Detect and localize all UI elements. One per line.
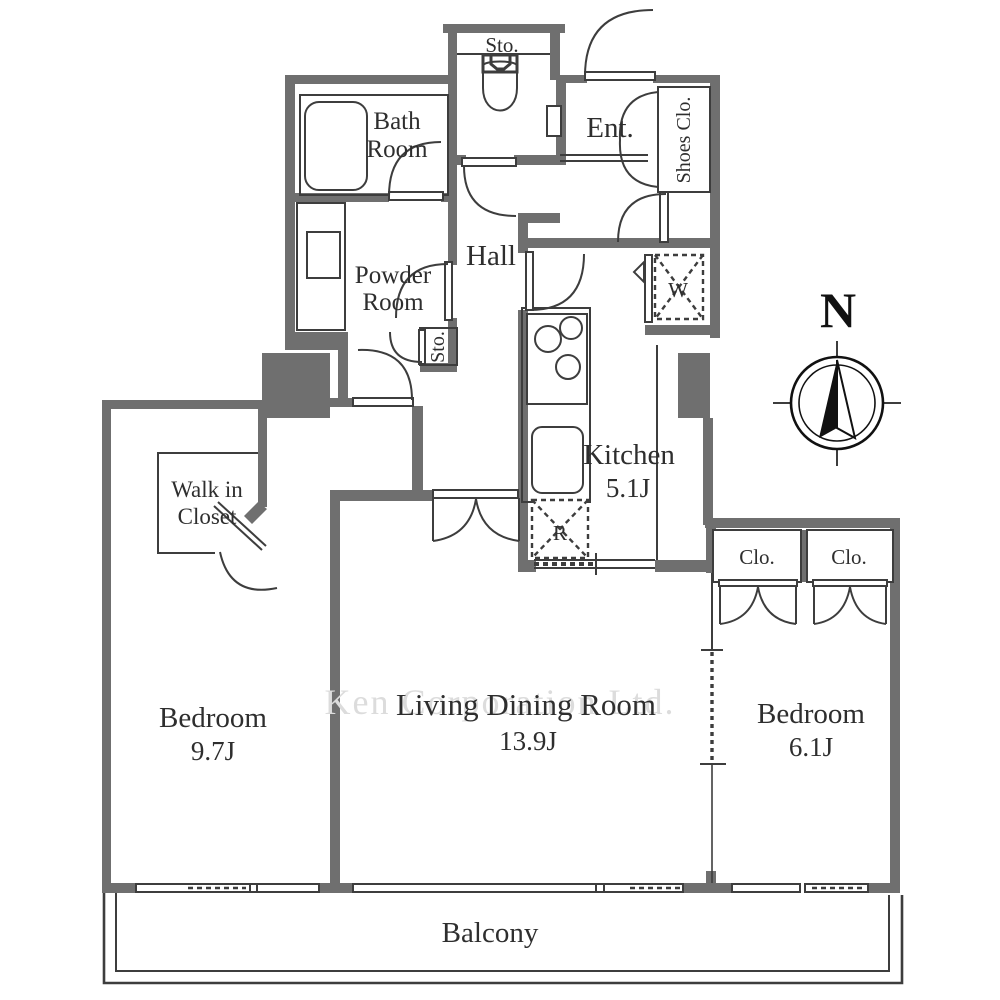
floor-plan-page: Ken Corporation Ltd. Sto. Bath Room Ent.… bbox=[0, 0, 1000, 1000]
bathtub-icon bbox=[305, 102, 367, 190]
bedroom1-window bbox=[136, 884, 319, 892]
windows bbox=[136, 884, 868, 892]
label-refrigerator: R bbox=[553, 521, 567, 545]
kitchen-counter bbox=[522, 308, 590, 502]
washer-door-panel bbox=[645, 255, 652, 322]
washer-door-arrow-icon bbox=[634, 262, 644, 282]
bedroom2-window bbox=[732, 884, 868, 892]
floor-plan-svg: Ken Corporation Ltd. Sto. Bath Room Ent.… bbox=[0, 0, 1000, 1000]
label-closet-right: Clo. bbox=[831, 545, 867, 569]
vanity-counter bbox=[297, 203, 345, 330]
toilet-icon bbox=[483, 55, 517, 111]
front-door bbox=[585, 10, 655, 80]
kitchen-door bbox=[526, 252, 584, 310]
label-ldr-size: 13.9J bbox=[499, 726, 557, 756]
ldr-window bbox=[353, 884, 683, 892]
vanity-sink-icon bbox=[307, 232, 340, 278]
label-powder-1: Powder bbox=[355, 262, 432, 289]
label-kitchen: Kitchen bbox=[583, 439, 675, 471]
kitchen-sink-icon bbox=[532, 427, 583, 493]
label-wic-2: Closet bbox=[178, 504, 237, 529]
label-storage-top: Sto. bbox=[485, 33, 518, 57]
label-bedroom2-size: 6.1J bbox=[789, 732, 833, 762]
label-powder-2: Room bbox=[362, 289, 424, 316]
ldr-french-doors bbox=[433, 490, 519, 541]
label-north: N bbox=[820, 282, 856, 338]
label-shoes-closet: Shoes Clo. bbox=[673, 97, 695, 184]
toilet-niche bbox=[547, 106, 561, 136]
sliding-partition bbox=[700, 573, 726, 883]
entrance-hall-door bbox=[618, 192, 668, 242]
label-bedroom2: Bedroom bbox=[757, 698, 865, 730]
label-hall: Hall bbox=[466, 240, 516, 272]
label-storage-hall: Sto. bbox=[427, 331, 449, 363]
walk-in-closet-box bbox=[158, 453, 258, 553]
label-balcony: Balcony bbox=[442, 917, 539, 949]
closet-right-doors bbox=[813, 580, 887, 624]
label-closet-left: Clo. bbox=[739, 545, 775, 569]
label-bedroom1-size: 9.7J bbox=[191, 736, 235, 766]
label-bath-2: Room bbox=[366, 136, 428, 163]
toilet-door bbox=[462, 158, 516, 216]
compass-icon bbox=[773, 341, 901, 466]
label-bath-1: Bath bbox=[373, 108, 421, 135]
label-ldr: Living Dining Room bbox=[396, 687, 656, 722]
label-entrance: Ent. bbox=[586, 112, 634, 144]
label-washing-machine: W bbox=[668, 278, 688, 302]
closet-left-doors bbox=[719, 580, 797, 624]
label-kitchen-size: 5.1J bbox=[606, 473, 650, 503]
label-bedroom1: Bedroom bbox=[159, 702, 267, 734]
label-wic-1: Walk in bbox=[171, 477, 243, 502]
